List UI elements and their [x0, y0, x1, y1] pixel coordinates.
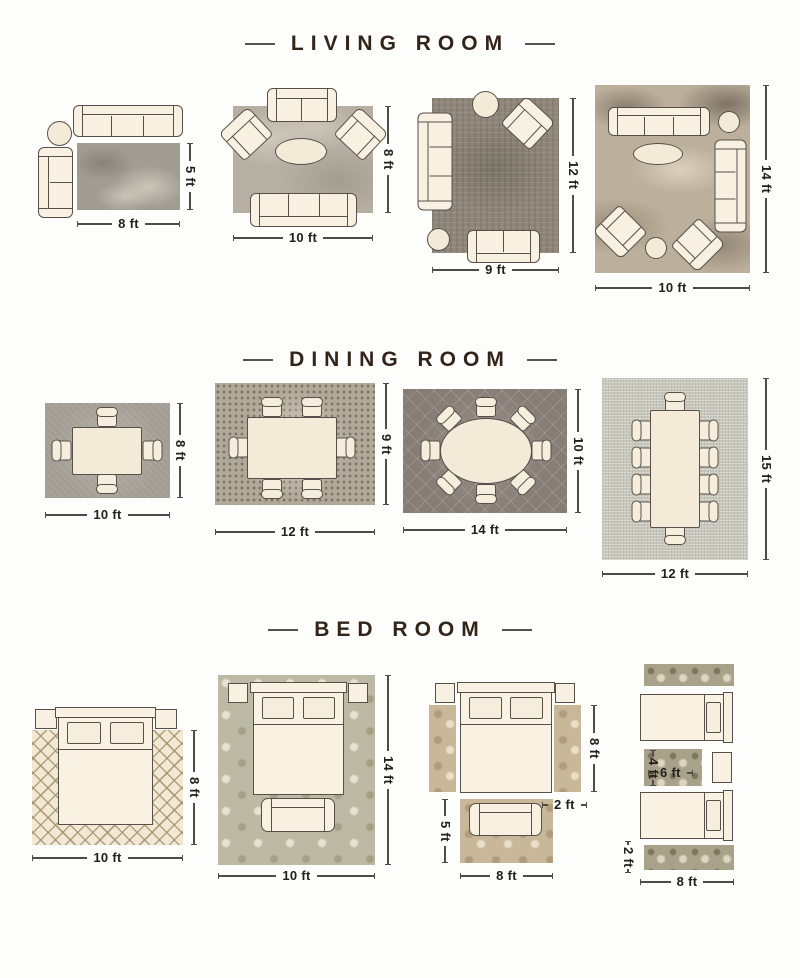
- runner-width-dimension: 8 ft: [640, 874, 734, 890]
- section-title-bed: BED ROOM: [0, 618, 800, 642]
- loveseat: [467, 230, 540, 263]
- width-dimension: 10 ft: [218, 868, 375, 884]
- width-dimension: 8 ft: [77, 216, 180, 232]
- loveseat: [38, 147, 73, 218]
- dimension-text: 10 ft: [570, 432, 586, 470]
- section-title-text: BED ROOM: [314, 618, 486, 642]
- bench: [261, 798, 335, 832]
- title-dash-right: [527, 359, 557, 361]
- dining-chair: [635, 475, 652, 495]
- twin-bed: [640, 792, 732, 839]
- sofa: [267, 88, 337, 122]
- dimension-text: 9 ft: [378, 429, 394, 460]
- dining-chair: [336, 438, 353, 458]
- width-dimension: 10 ft: [32, 850, 183, 866]
- height-dimension: 15 ft: [758, 378, 774, 560]
- dining-chair: [55, 441, 72, 461]
- dimension-text: 2 ft: [620, 845, 636, 870]
- sofa: [250, 193, 357, 227]
- width-dimension: 10 ft: [45, 507, 170, 523]
- nightstand: [348, 683, 368, 703]
- dining-chair: [232, 438, 249, 458]
- round-ottoman: [427, 228, 450, 251]
- rug-size-guide-infographic: LIVING ROOM 5 ft 8 ft 8 ft 10 ft: [0, 0, 800, 978]
- title-dash-right: [525, 43, 555, 45]
- width-dimension: 10 ft: [595, 280, 750, 296]
- nightstand: [228, 683, 248, 703]
- section-title-text: DINING ROOM: [289, 348, 511, 372]
- runner-height-dimension: 2 ft: [620, 841, 636, 873]
- dimension-text: 5 ft: [182, 161, 198, 192]
- bed: [253, 683, 344, 795]
- dining-chair: [699, 448, 716, 468]
- dimension-text: 10 ft: [87, 507, 127, 523]
- dining-chair: [699, 502, 716, 522]
- dimension-text: 10 ft: [87, 850, 127, 866]
- nightstand: [555, 683, 575, 703]
- runner-height-dimension: 8 ft: [586, 705, 602, 792]
- dimension-text: 14 ft: [758, 160, 774, 198]
- dining-chair: [302, 400, 322, 417]
- title-dash-right: [502, 629, 532, 631]
- height-dimension: 8 ft: [172, 403, 188, 498]
- section-title-text: LIVING ROOM: [291, 32, 509, 56]
- height-dimension: 10 ft: [570, 389, 586, 513]
- side-runner-rug: [429, 705, 456, 792]
- dining-chair: [635, 502, 652, 522]
- dimension-text: 8 ft: [112, 216, 145, 232]
- dimension-text: 6 ft: [654, 765, 687, 781]
- dining-table: [650, 410, 700, 528]
- dining-chair: [476, 400, 496, 417]
- dining-chair: [97, 410, 117, 427]
- title-dash-left: [245, 43, 275, 45]
- dining-chair: [635, 448, 652, 468]
- nightstand: [712, 752, 732, 783]
- bed: [58, 708, 153, 825]
- dimension-text: 8 ft: [172, 435, 188, 466]
- dimension-text: 8 ft: [186, 772, 202, 803]
- sofa: [73, 105, 183, 137]
- sofa: [608, 107, 710, 136]
- height-dimension: 12 ft: [565, 98, 581, 253]
- nightstand: [35, 709, 57, 729]
- dining-chair: [424, 441, 441, 461]
- width-dimension: 12 ft: [215, 524, 375, 540]
- dimension-text: 15 ft: [758, 450, 774, 488]
- height-dimension: 14 ft: [380, 675, 396, 865]
- dining-chair: [635, 421, 652, 441]
- width-dimension: 10 ft: [233, 230, 373, 246]
- round-side-table: [47, 121, 72, 146]
- between-rug-width-dimension: 6 ft: [648, 765, 700, 781]
- runner-rug: [644, 845, 734, 870]
- dining-chair: [143, 441, 160, 461]
- dimension-text: 8 ft: [586, 733, 602, 764]
- round-ottoman: [645, 237, 667, 259]
- runner-rug: [644, 664, 734, 686]
- title-dash-left: [268, 629, 298, 631]
- dimension-text: 5 ft: [437, 816, 453, 847]
- title-dash-left: [243, 359, 273, 361]
- dimension-text: 8 ft: [380, 144, 396, 175]
- runner-width-dimension: 2 ft: [542, 797, 594, 813]
- dining-chair: [699, 475, 716, 495]
- dimension-text: 10 ft: [283, 230, 323, 246]
- side-runner-rug: [554, 705, 581, 792]
- dimension-text: 12 ft: [565, 156, 581, 194]
- dimension-text: 10 ft: [652, 280, 692, 296]
- dimension-text: 8 ft: [671, 874, 704, 890]
- dimension-text: 8 ft: [490, 868, 523, 884]
- dimension-text: 12 ft: [275, 524, 315, 540]
- nightstand: [435, 683, 455, 703]
- dining-chair: [532, 441, 549, 461]
- dining-chair: [97, 474, 117, 491]
- bed: [460, 683, 552, 793]
- round-side-table: [472, 91, 499, 118]
- oval-dining-table: [440, 418, 532, 484]
- width-dimension: 14 ft: [403, 522, 567, 538]
- dining-table: [72, 427, 142, 475]
- foot-rug-width-dimension: 8 ft: [460, 868, 553, 884]
- oval-coffee-table: [275, 138, 327, 165]
- dining-table: [247, 417, 337, 479]
- rug-8x5: [77, 143, 180, 210]
- height-dimension: 8 ft: [380, 106, 396, 213]
- dining-chair: [262, 479, 282, 496]
- width-dimension: 12 ft: [602, 566, 748, 582]
- dimension-text: 12 ft: [655, 566, 695, 582]
- dining-chair: [262, 400, 282, 417]
- dimension-text: 10 ft: [276, 868, 316, 884]
- height-dimension: 14 ft: [758, 85, 774, 273]
- nightstand: [155, 709, 177, 729]
- section-title-living: LIVING ROOM: [0, 32, 800, 56]
- sofa: [715, 140, 747, 233]
- foot-rug-height-dimension: 5 ft: [437, 799, 453, 863]
- dimension-text: 14 ft: [465, 522, 505, 538]
- sofa: [418, 113, 453, 211]
- height-dimension: 9 ft: [378, 383, 394, 505]
- oval-coffee-table: [633, 143, 683, 165]
- height-dimension: 8 ft: [186, 730, 202, 845]
- twin-bed: [640, 694, 732, 741]
- dining-chair: [476, 484, 496, 501]
- bench: [469, 803, 542, 836]
- dimension-text: 9 ft: [479, 262, 512, 278]
- height-dimension: 5 ft: [182, 143, 198, 210]
- width-dimension: 9 ft: [432, 262, 559, 278]
- dimension-text: 2 ft: [548, 797, 581, 813]
- dining-chair: [302, 479, 322, 496]
- dining-chair: [699, 421, 716, 441]
- dimension-text: 14 ft: [380, 751, 396, 789]
- section-title-dining: DINING ROOM: [0, 348, 800, 372]
- round-side-table: [718, 111, 740, 133]
